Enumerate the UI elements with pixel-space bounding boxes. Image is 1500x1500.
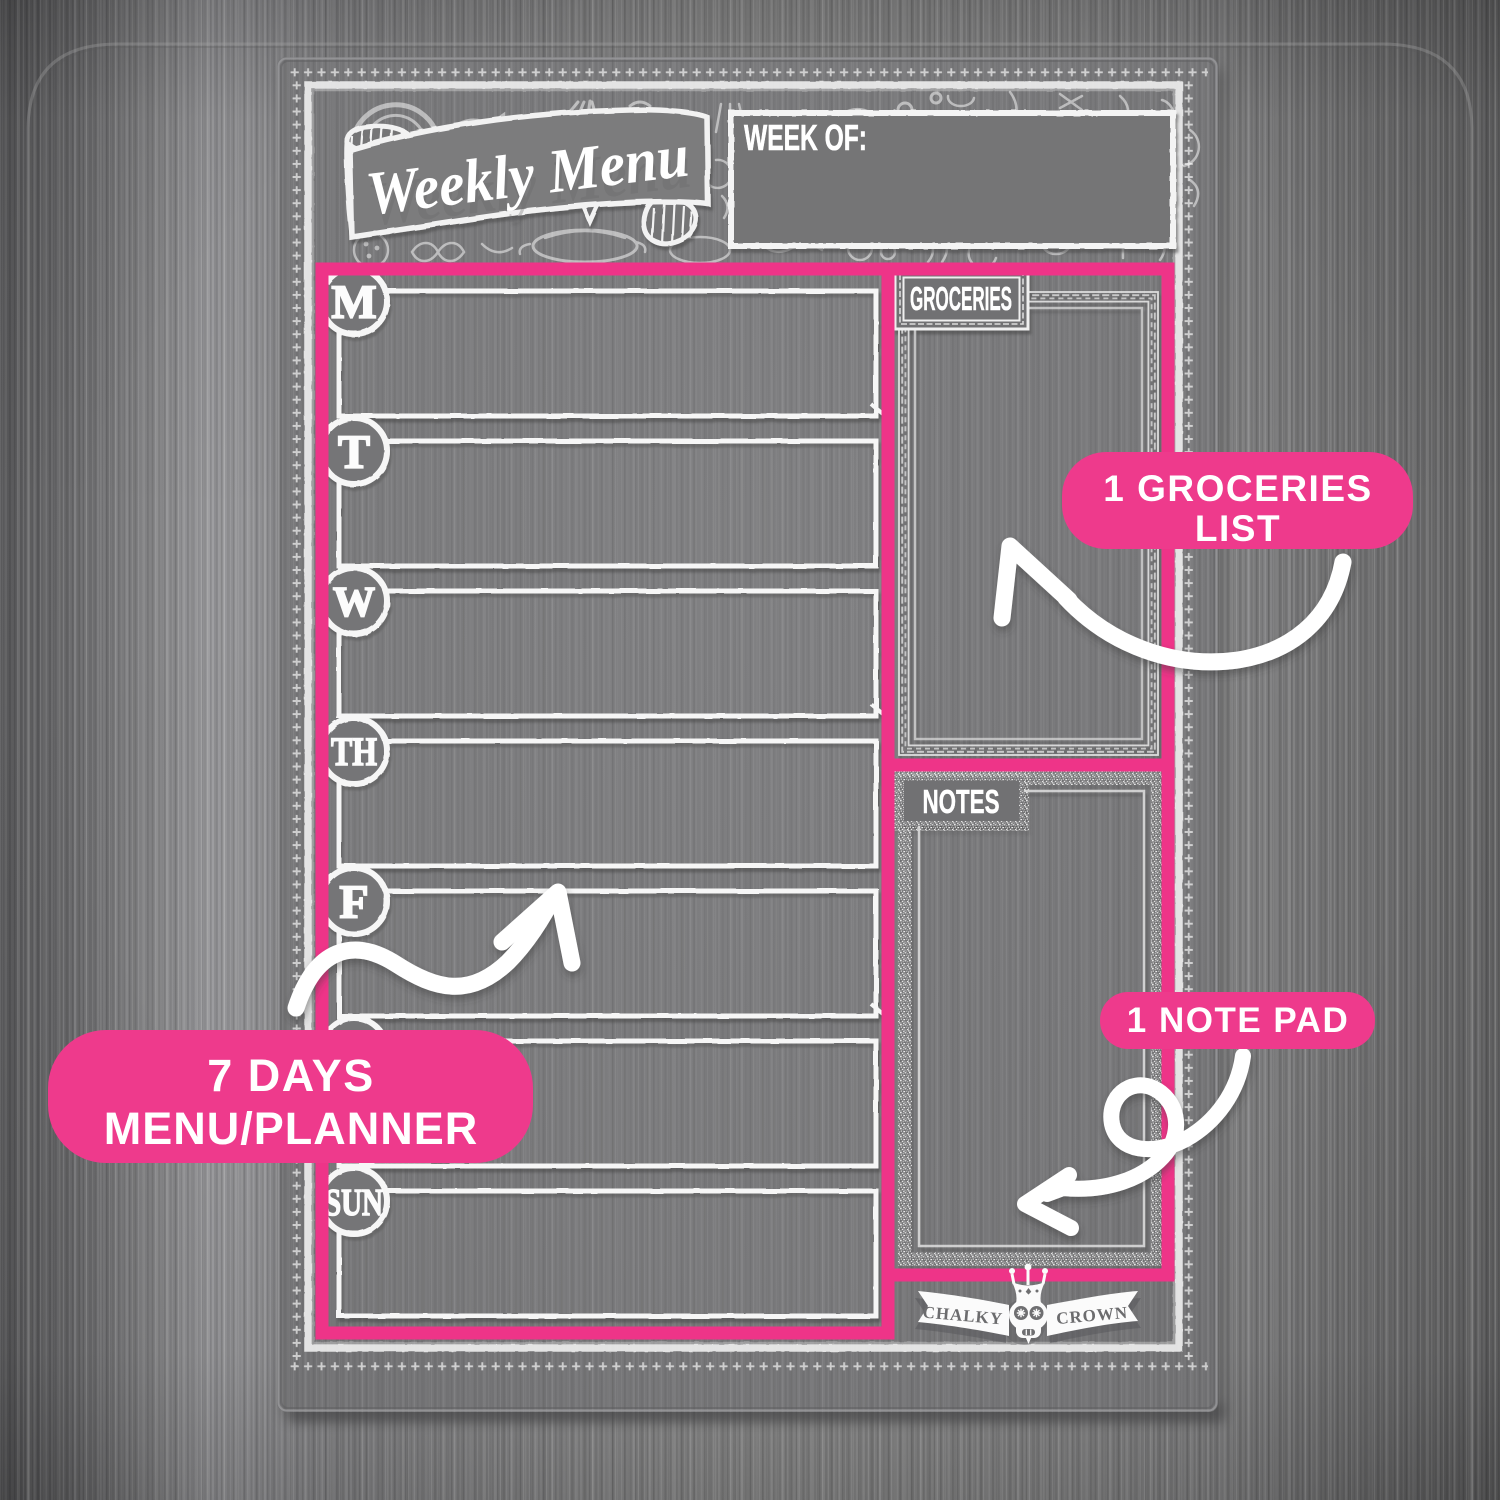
svg-text:TH: TH [331, 729, 377, 774]
svg-text:F: F [339, 876, 368, 929]
svg-text:MENU/PLANNER: MENU/PLANNER [104, 1103, 479, 1154]
svg-text:LIST: LIST [1195, 508, 1281, 549]
svg-text:1 GROCERIES: 1 GROCERIES [1103, 468, 1372, 509]
svg-text:T: T [338, 426, 370, 479]
svg-text:NOTES: NOTES [923, 783, 1000, 820]
svg-text:M: M [331, 276, 376, 329]
svg-text:1 NOTE PAD: 1 NOTE PAD [1127, 1001, 1349, 1040]
svg-text:W: W [333, 580, 375, 626]
svg-text:SUN: SUN [325, 1182, 383, 1224]
svg-text:GROCERIES: GROCERIES [910, 280, 1012, 317]
svg-text:7 DAYS: 7 DAYS [207, 1050, 374, 1101]
svg-text:WEEK OF:: WEEK OF: [744, 117, 867, 158]
